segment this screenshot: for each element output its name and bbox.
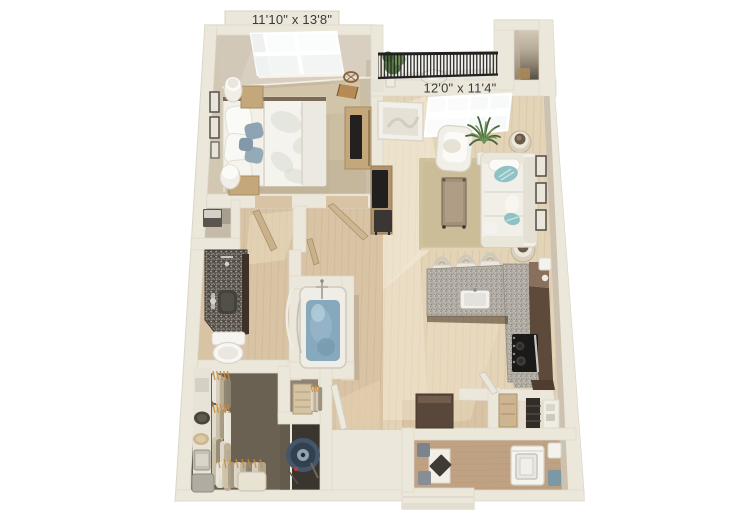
- svg-text:12'0" x 11'4": 12'0" x 11'4": [424, 81, 497, 96]
- svg-text:11'10" x 13'8": 11'10" x 13'8": [252, 12, 333, 27]
